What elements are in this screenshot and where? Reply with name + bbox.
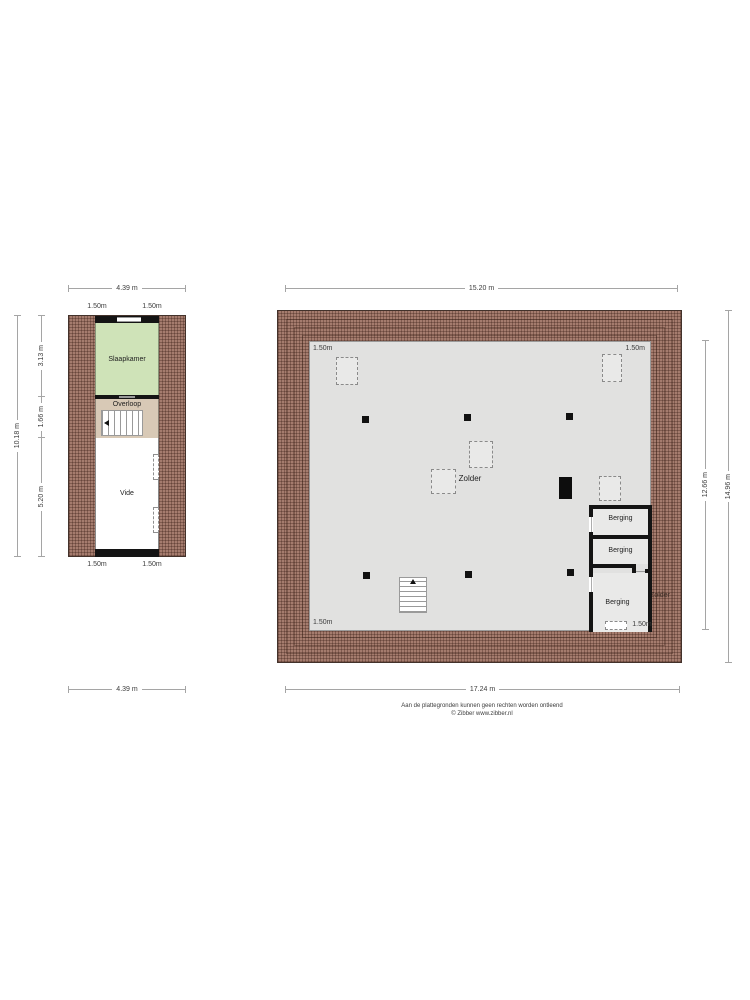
room-berging-1-label: Berging (593, 515, 648, 522)
berging-wall (645, 569, 652, 573)
dimension-small-bottom-label: 4.39 m (112, 686, 141, 693)
stairs-icon (101, 410, 143, 436)
dimension-large-right-inner-label: 12.66 m (702, 469, 709, 500)
column-icon (566, 413, 573, 420)
dimension-large-right-outer: 14.96 m (724, 310, 733, 663)
chimney-icon (559, 477, 572, 499)
room-slaapkamer-label: Slaapkamer (108, 356, 145, 363)
kneewall-label-top-right: 1.50m (137, 303, 167, 310)
roof-window-icon (153, 454, 159, 480)
berging-wall (589, 505, 652, 509)
kneewall-label-bottom-left: 1.50m (313, 619, 332, 626)
roof-window-icon (153, 507, 159, 533)
skylight-icon (602, 354, 622, 382)
wall-top (95, 316, 159, 323)
stairs-icon (399, 577, 427, 613)
room-slaapkamer: Slaapkamer (95, 323, 159, 395)
dimension-small-left-segments: 3.13 m 1.66 m 5.20 m (37, 315, 46, 557)
roof-right (159, 316, 185, 556)
dimension-segment: 3.13 m (37, 316, 46, 396)
dimension-segment: 5.20 m (37, 438, 46, 556)
dimension-large-right-outer-label: 14.96 m (725, 471, 732, 502)
dimension-large-right-inner: 12.66 m (701, 340, 710, 630)
room-overloop: Overloop (95, 399, 159, 438)
dimension-large-bottom-label: 17.24 m (466, 686, 499, 693)
roof-left (69, 316, 95, 556)
column-icon (363, 572, 370, 579)
skylight-icon (469, 441, 493, 468)
copyright-text: © Zibber www.zibber.nl (332, 710, 632, 718)
dimension-small-bottom: 4.39 m (68, 685, 186, 694)
zolder-floor: 1.50m 1.50m 1.50m Zolder (309, 341, 651, 631)
dormer-window-icon (605, 621, 627, 630)
room-berging-3-label: Berging (590, 599, 645, 606)
dimension-small-left-total-label: 10.18 m (14, 420, 21, 451)
dimension-large-bottom: 17.24 m (285, 685, 680, 694)
skylight-icon (336, 357, 358, 385)
floorplan-page: 4.39 m 1.50m 1.50m Slaapkamer Overloop V… (0, 0, 750, 1000)
dimension-small-left-total: 10.18 m (13, 315, 22, 557)
skylight-icon (599, 476, 621, 501)
dimension-small-top-label: 4.39 m (112, 285, 141, 292)
column-icon (362, 416, 369, 423)
kneewall-label-bottom-left: 1.50m (82, 561, 112, 568)
disclaimer-text: Aan de plattegronden kunnen geen rechten… (332, 702, 632, 710)
column-icon (567, 569, 574, 576)
room-overloop-label: Overloop (96, 401, 158, 408)
segment-label: 1.66 m (38, 403, 45, 430)
room-vide: Vide (95, 438, 159, 549)
large-building: Zolder 1.50m 1.50m 1.50m Zolder (277, 310, 682, 663)
stairs-direction-arrow-icon (410, 579, 416, 584)
berging-window-label: 1.50m (629, 621, 655, 628)
dimension-small-top: 4.39 m (68, 284, 186, 293)
stairs-direction-arrow-icon (104, 420, 109, 426)
room-zolder-label: Zolder (438, 474, 502, 483)
door-opening (119, 396, 135, 398)
dimension-large-top: 15.20 m (285, 284, 678, 293)
dimension-large-top-label: 15.20 m (465, 285, 498, 292)
door-opening (636, 571, 645, 572)
berging-wall (589, 535, 652, 539)
kneewall-label-bottom-right: 1.50m (137, 561, 167, 568)
berging-wall (589, 564, 636, 568)
column-icon (465, 571, 472, 578)
door-opening (589, 577, 593, 592)
room-vide-label: Vide (120, 490, 134, 497)
column-icon (464, 414, 471, 421)
room-berging-2-label: Berging (593, 547, 648, 554)
segment-label: 3.13 m (38, 342, 45, 369)
kneewall-label-top-left: 1.50m (313, 345, 332, 352)
kneewall-label-top-left: 1.50m (82, 303, 112, 310)
kneewall-label-top-right: 1.50m (626, 345, 645, 352)
room-berging-1 (593, 509, 648, 535)
window-icon (117, 317, 141, 322)
footer-disclaimer: Aan de plattegronden kunnen geen rechten… (332, 702, 632, 719)
segment-label: 5.20 m (38, 483, 45, 510)
dimension-segment: 1.66 m (37, 397, 46, 437)
small-building: Slaapkamer Overloop Vide (68, 315, 186, 557)
wall-bottom (95, 549, 159, 557)
